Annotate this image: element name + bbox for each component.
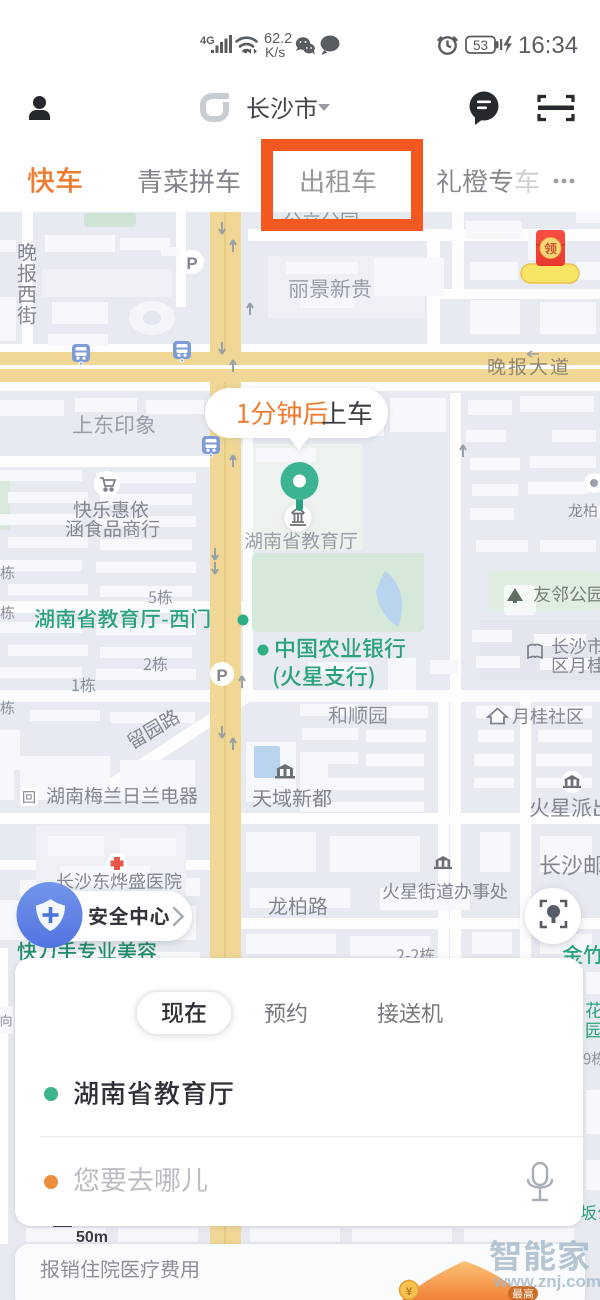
svg-text:P: P [186,254,197,273]
svg-text:4G: 4G [200,35,215,47]
svg-text:P: P [216,666,227,685]
svg-text:50m: 50m [76,1229,108,1246]
svg-text:53: 53 [473,38,488,53]
svg-text:16:34: 16:34 [518,32,578,59]
svg-text:K/s: K/s [265,44,285,60]
svg-text:¥: ¥ [406,1286,413,1298]
svg-text:www.znj.com: www.znj.com [493,1272,600,1291]
